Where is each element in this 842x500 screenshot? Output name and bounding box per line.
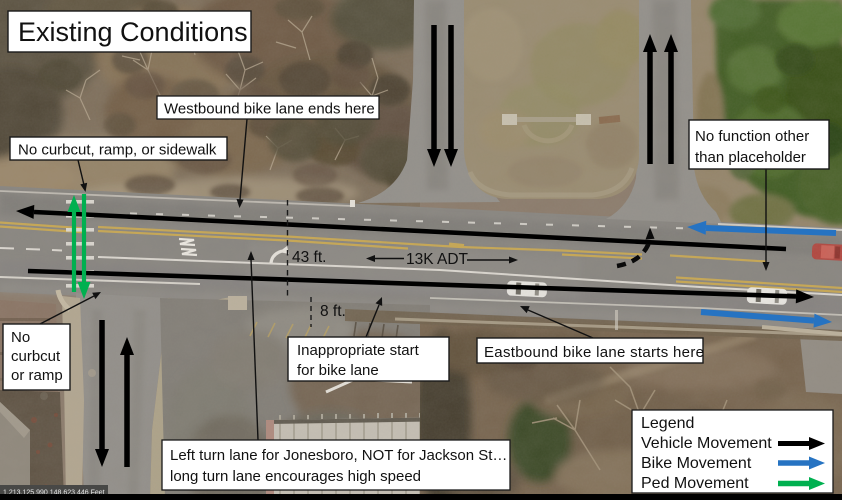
svg-text:for bike lane: for bike lane (297, 362, 379, 379)
svg-text:13K ADT: 13K ADT (406, 251, 469, 268)
svg-text:Vehicle Movement: Vehicle Movement (641, 435, 772, 452)
svg-text:or ramp: or ramp (11, 367, 63, 384)
svg-text:43 ft.: 43 ft. (292, 249, 326, 266)
svg-text:Eastbound bike lane starts her: Eastbound bike lane starts here (484, 344, 704, 361)
svg-text:Left turn lane for Jonesboro,: Left turn lane for Jonesboro, NOT for Ja… (170, 447, 507, 464)
svg-text:than placeholder: than placeholder (695, 149, 806, 166)
svg-text:No function other: No function other (695, 128, 809, 145)
svg-text:Existing Conditions: Existing Conditions (18, 17, 248, 47)
svg-text:curbcut: curbcut (11, 348, 61, 365)
svg-text:Legend: Legend (641, 415, 694, 432)
svg-text:Bike Movement: Bike Movement (641, 455, 752, 472)
svg-text:Inappropriate start: Inappropriate start (297, 342, 420, 359)
svg-text:No: No (11, 329, 30, 346)
svg-text:long turn lane encourages high: long turn lane encourages high speed (170, 468, 421, 485)
svg-text:Ped Movement: Ped Movement (641, 475, 749, 492)
svg-text:Westbound bike lane ends here: Westbound bike lane ends here (164, 101, 375, 118)
svg-text:8 ft.: 8 ft. (320, 303, 346, 320)
svg-text:No curbcut, ramp, or sidewalk: No curbcut, ramp, or sidewalk (18, 142, 217, 159)
